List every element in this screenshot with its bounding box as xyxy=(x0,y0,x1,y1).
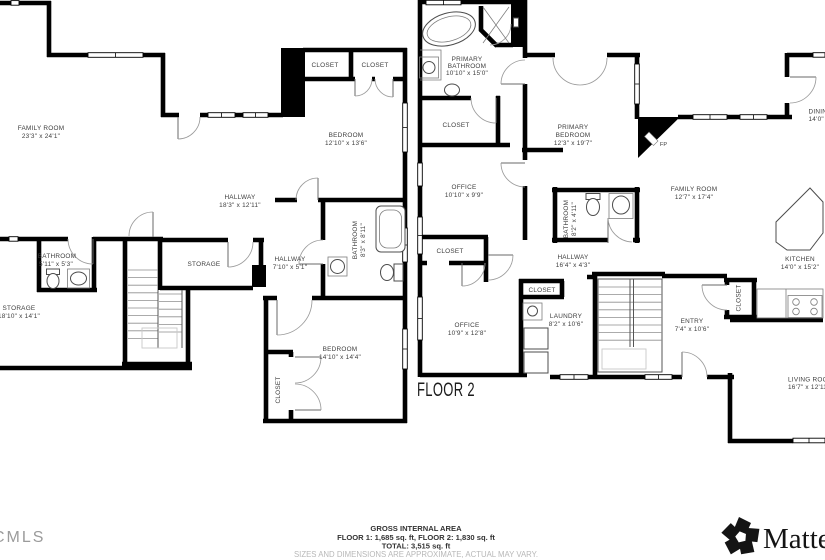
room-dims-office-1: 10'10" x 9'9" xyxy=(445,192,483,199)
room-label-laundry: LAUNDRY xyxy=(550,313,583,320)
window-icon xyxy=(9,237,18,242)
room-dims-hallway-small: 7'10" x 5'1" xyxy=(273,264,308,271)
room-label-hallway-right: HALLWAY xyxy=(557,254,589,261)
upper-bathroom-fixtures-icon xyxy=(586,194,633,219)
room-dims-dining: 14'0" xyxy=(809,116,824,123)
staircase-right xyxy=(598,279,662,372)
room-label-family-room-left: FAMILY ROOM xyxy=(18,125,65,132)
laundry-appliances-icon xyxy=(523,303,548,373)
floorplan-page: FAMILY ROOM 23'3" x 24'1" HALLWAY 18'3" … xyxy=(0,0,825,560)
staircase-left xyxy=(128,270,182,348)
room-dims-hallway-left: 18'3" x 12'11" xyxy=(219,202,261,209)
room-dims-living-room: 16'7" x 12'11" xyxy=(788,384,825,391)
room-dims-office-2: 10'9" x 12'8" xyxy=(448,330,486,337)
room-dims-bedroom-2: 14'10" x 14'4" xyxy=(319,354,361,361)
room-label-dining: DINING xyxy=(809,109,825,116)
room-dims-primary-bedroom: 12'3" x 19'7" xyxy=(554,140,592,147)
room-label-entry: ENTRY xyxy=(681,318,704,325)
kitchen-island-icon xyxy=(776,188,823,250)
room-dims-bathroom-hall: 8'3" x 8'11" xyxy=(360,223,367,257)
cmls-logo: CMLS xyxy=(0,529,45,546)
stair-ghost-outline xyxy=(602,349,646,369)
room-label-closet-a: CLOSET xyxy=(311,62,338,69)
room-label-primary-bathroom-2: BATHROOM xyxy=(448,63,486,70)
matterport-wordmark: Matterport xyxy=(763,523,825,555)
summary-title: GROSS INTERNAL AREA xyxy=(370,524,462,533)
room-dims-kitchen: 14'0" x 15'2" xyxy=(781,264,819,271)
room-label-hallway-left: HALLWAY xyxy=(224,194,256,201)
kitchen-counter-icon xyxy=(757,289,823,318)
summary-disclaimer: SIZES AND DIMENSIONS ARE APPROXIMATE, AC… xyxy=(294,550,538,559)
room-label-closet-entry: CLOSET xyxy=(736,284,743,311)
room-label-primary-bathroom-1: PRIMARY xyxy=(452,56,483,63)
room-dims-laundry: 8'2" x 10'6" xyxy=(549,321,584,328)
stair-stringers xyxy=(158,290,182,348)
room-label-bathroom-upper: BATHROOM xyxy=(563,200,570,238)
primary-bathtub-icon xyxy=(419,6,480,52)
floorplan-canvas: FAMILY ROOM 23'3" x 24'1" HALLWAY 18'3" … xyxy=(0,0,825,560)
floor-title: FLOOR 2 xyxy=(417,380,475,401)
room-dims-entry: 7'4" x 10'6" xyxy=(675,326,710,333)
room-dims-family-room-left: 23'3" x 24'1" xyxy=(22,133,60,140)
room-label-kitchen: KITCHEN xyxy=(785,256,815,263)
fireplace-label: FP xyxy=(660,142,667,148)
room-label-storage-left: STORAGE xyxy=(3,305,36,312)
area-summary: GROSS INTERNAL AREA FLOOR 1: 1,685 sq. f… xyxy=(294,524,538,559)
room-dims-primary-bathroom: 10'10" x 15'0" xyxy=(446,70,488,77)
room-label-bathroom-small: BATHROOM xyxy=(38,253,76,260)
doors xyxy=(68,24,816,410)
window-icon xyxy=(418,163,423,186)
window-icon xyxy=(813,53,825,58)
room-label-hallway-small: HALLWAY xyxy=(274,256,306,263)
room-label-closet-laundry: CLOSET xyxy=(528,287,555,294)
room-label-primary-bedroom-1: PRIMARY xyxy=(558,124,589,131)
small-bathroom-fixtures-icon xyxy=(47,269,90,289)
room-label-family-room-right: FAMILY ROOM xyxy=(671,186,718,193)
room-label-office-2: OFFICE xyxy=(455,322,480,329)
room-label-living-room: LIVING ROOM xyxy=(788,377,825,384)
room-label-office-1: OFFICE xyxy=(452,184,477,191)
room-dims-bathroom-upper: 8'2" x 4'11" xyxy=(571,202,578,236)
door-arcs xyxy=(68,24,816,410)
room-label-primary-bedroom-2: BEDROOM xyxy=(556,132,591,139)
window-icon xyxy=(11,1,19,6)
room-label-bedroom-1: BEDROOM xyxy=(329,132,364,139)
room-label-bathroom-hall: BATHROOM xyxy=(352,221,359,259)
room-label-bedroom-2: BEDROOM xyxy=(323,346,358,353)
room-dims-hallway-right: 16'4" x 4'3" xyxy=(556,262,591,269)
room-label-storage-mid: STORAGE xyxy=(188,261,221,268)
room-dims-family-room-right: 12'7" x 17'4" xyxy=(675,194,713,201)
room-dims-bedroom-1: 12'10" x 13'6" xyxy=(325,140,367,147)
room-label-closet-bedroom2: CLOSET xyxy=(275,376,282,403)
room-label-closet-b: CLOSET xyxy=(361,62,388,69)
room-dims-bathroom-small: 5'11" x 5'3" xyxy=(39,261,73,268)
room-dims-storage-left: 18'10" x 14'1" xyxy=(0,313,40,320)
room-label-closet-primary: CLOSET xyxy=(442,122,469,129)
walls xyxy=(0,0,823,443)
room-label-closet-strip: CLOSET xyxy=(436,248,463,255)
windows xyxy=(9,0,825,443)
stair-rail xyxy=(630,279,634,347)
matterport-logo: Matterport xyxy=(720,517,825,559)
matterport-pinwheel-icon xyxy=(720,517,763,559)
